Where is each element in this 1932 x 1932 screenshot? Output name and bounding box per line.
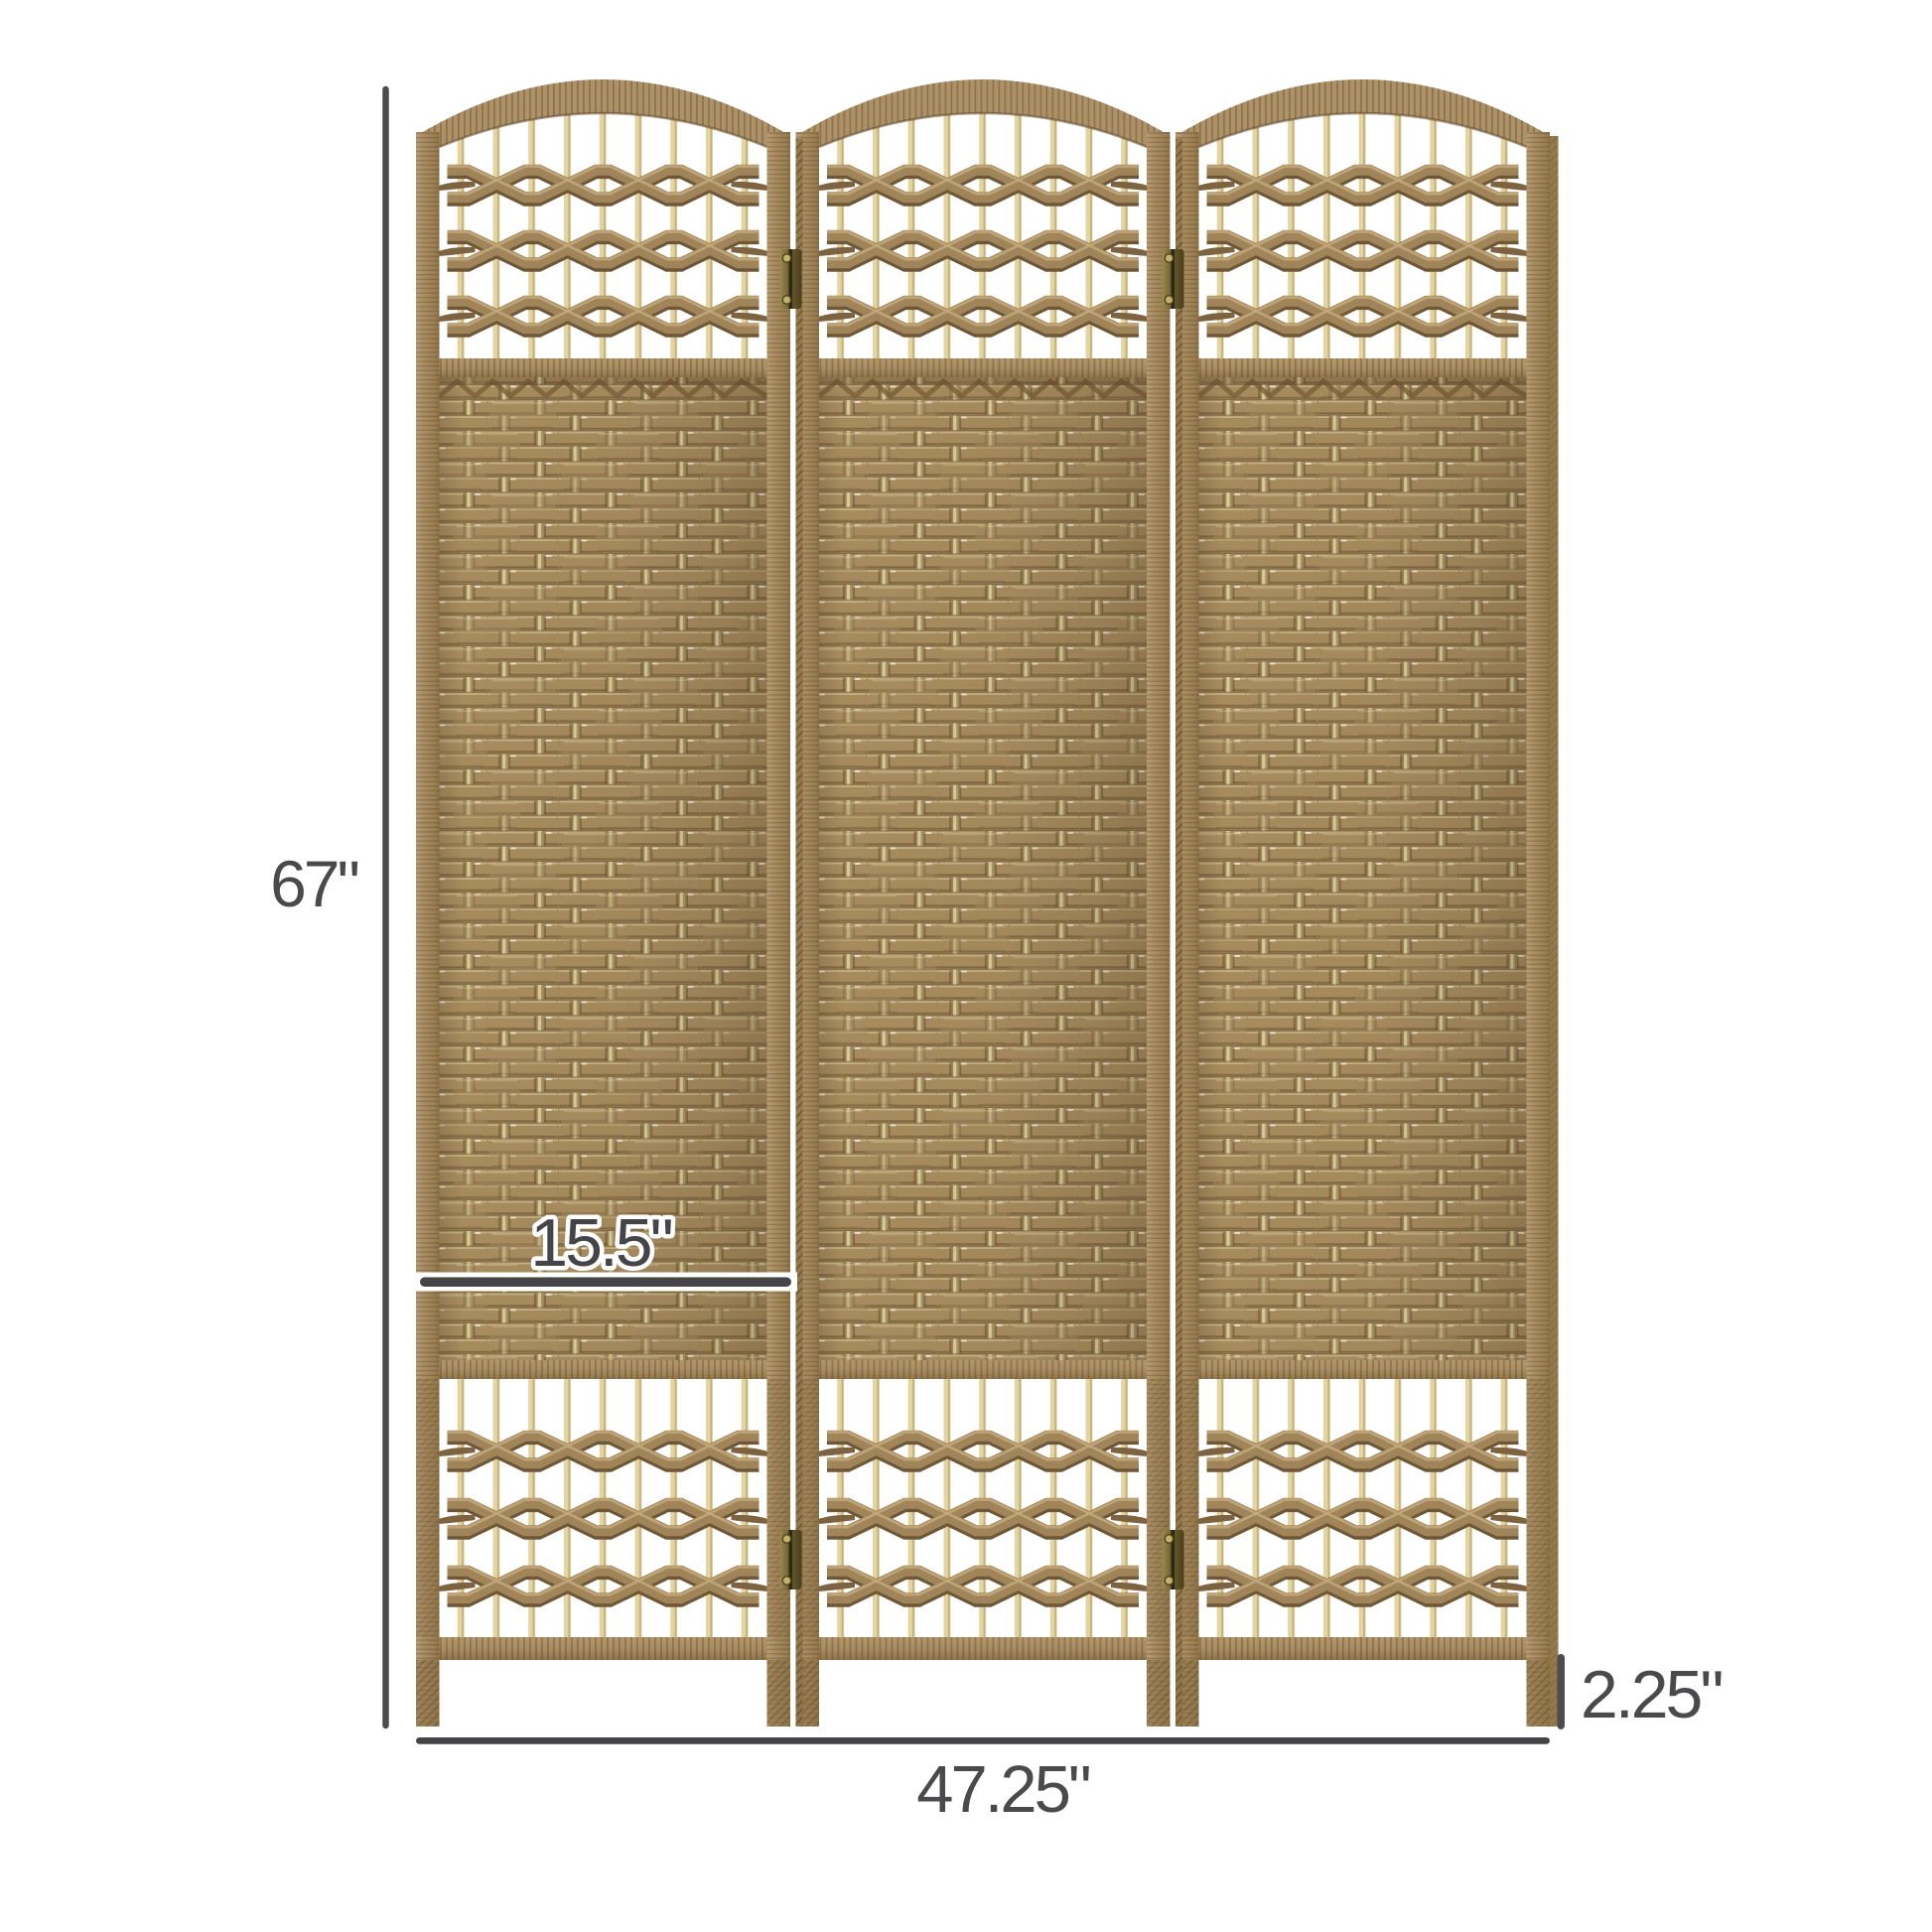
svg-text:2.25": 2.25" [1581, 1657, 1722, 1732]
svg-text:67": 67" [270, 847, 357, 920]
svg-text:47.25": 47.25" [916, 1752, 1089, 1827]
svg-text:15.5": 15.5" [530, 1205, 671, 1281]
